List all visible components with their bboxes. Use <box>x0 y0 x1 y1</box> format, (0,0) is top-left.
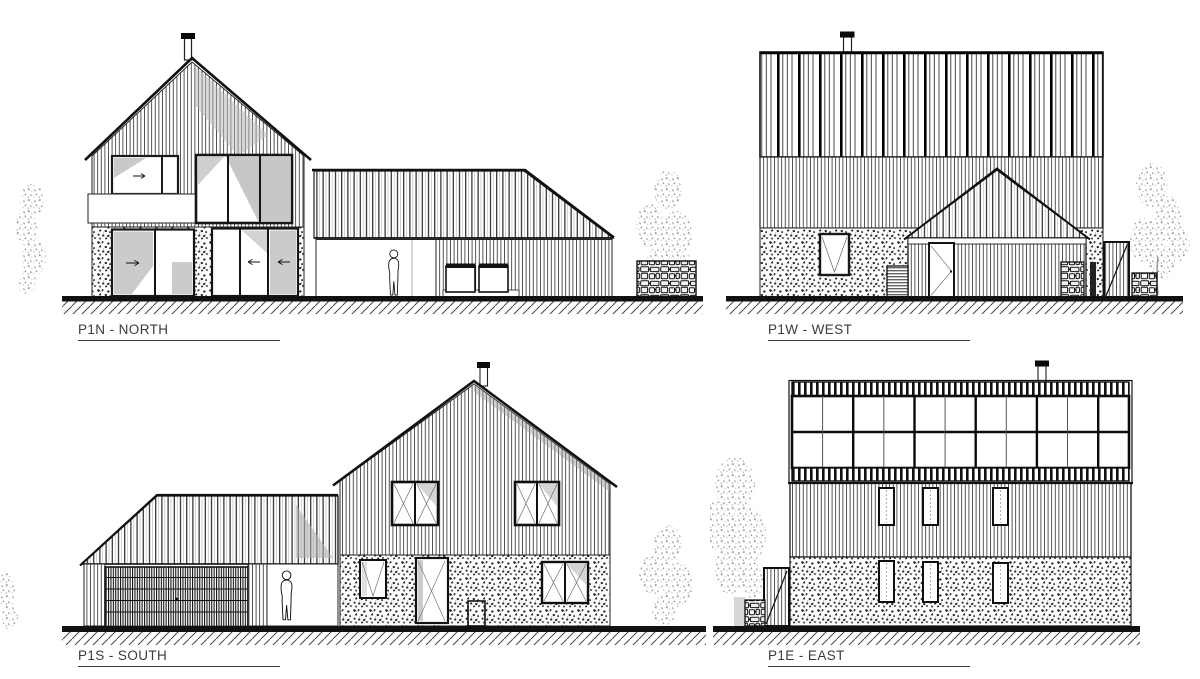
first-floor-window-left <box>392 482 438 525</box>
west-ground-line <box>726 296 1183 314</box>
south-main-house <box>333 362 617 626</box>
north-wing <box>312 170 614 297</box>
cladding-band <box>790 483 1131 557</box>
stone-pier <box>745 600 765 626</box>
stone-window <box>820 234 849 275</box>
roof-stripe-band-bottom <box>792 468 1129 481</box>
roof-face <box>760 52 1103 157</box>
first-floor-window-right <box>515 482 559 525</box>
stone-plinth <box>790 557 1131 626</box>
west-elevation-label: P1W - WEST <box>768 322 970 341</box>
chimney-flue <box>477 362 490 386</box>
louvre-stack <box>887 266 908 298</box>
north-tree-right <box>636 170 696 297</box>
stone-pier <box>1061 262 1084 298</box>
south-elevation-drawing <box>0 345 710 679</box>
chimney-flue <box>840 32 855 53</box>
chimney-flue <box>181 33 195 60</box>
garage-door <box>105 567 248 627</box>
south-tree-right <box>639 525 693 626</box>
south-wing <box>80 495 338 627</box>
north-main-house <box>85 33 311 297</box>
garden-wall <box>637 261 696 297</box>
east-elevation-drawing <box>710 345 1200 679</box>
first-floor-glazing <box>196 155 292 223</box>
elevation-drawing-sheet: P1N - NORTH P1W - WEST P1S - SOUTH P1E -… <box>0 0 1200 679</box>
stone-step <box>468 601 485 626</box>
north-elevation-label: P1N - NORTH <box>78 322 280 341</box>
rooflight-grid <box>792 396 1129 468</box>
timber-gate <box>764 568 789 626</box>
north-ground-line <box>62 296 703 314</box>
ground-floor-doors-left <box>112 230 194 297</box>
ground-floor-window-left <box>360 560 386 598</box>
south-ground-line <box>62 626 706 645</box>
south-elevation-label: P1S - SOUTH <box>78 648 280 667</box>
fence-post <box>1090 262 1096 298</box>
ground-floor-window-right <box>542 562 588 603</box>
wing-door <box>929 243 954 299</box>
west-elevation-drawing <box>710 0 1200 320</box>
stone-pier <box>1132 273 1157 299</box>
east-building <box>788 361 1133 627</box>
north-elevation-drawing <box>0 0 710 320</box>
entrance-door <box>416 558 448 623</box>
balcony-band <box>88 194 196 223</box>
tree-trunk <box>734 597 745 626</box>
first-floor-window-left <box>112 156 178 194</box>
east-elevation-label: P1E - EAST <box>768 648 970 667</box>
roof-stripe-band-top <box>792 382 1129 396</box>
ground-floor-doors-right <box>212 229 298 297</box>
south-tree-left <box>0 573 18 630</box>
timber-gate <box>1104 242 1129 299</box>
north-tree-left <box>16 184 46 294</box>
east-ground-line <box>713 626 1140 645</box>
